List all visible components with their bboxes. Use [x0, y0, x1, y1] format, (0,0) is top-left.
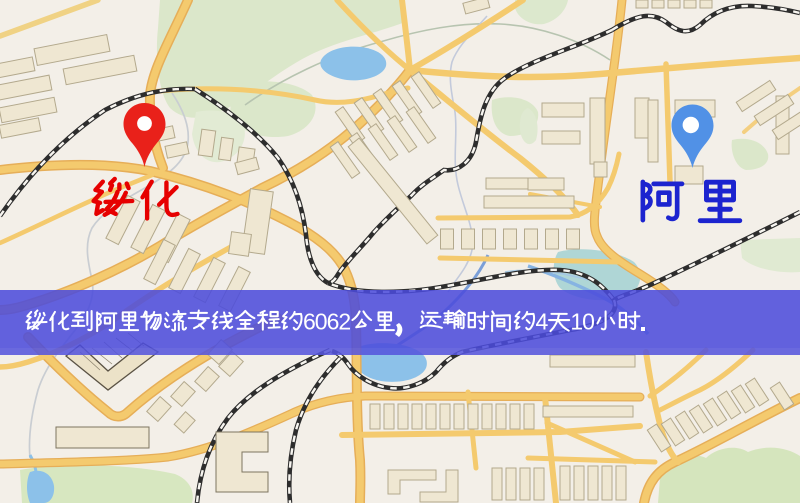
svg-text:6062: 6062 — [303, 309, 350, 335]
svg-text:4: 4 — [536, 309, 549, 335]
svg-text:10: 10 — [570, 309, 594, 335]
